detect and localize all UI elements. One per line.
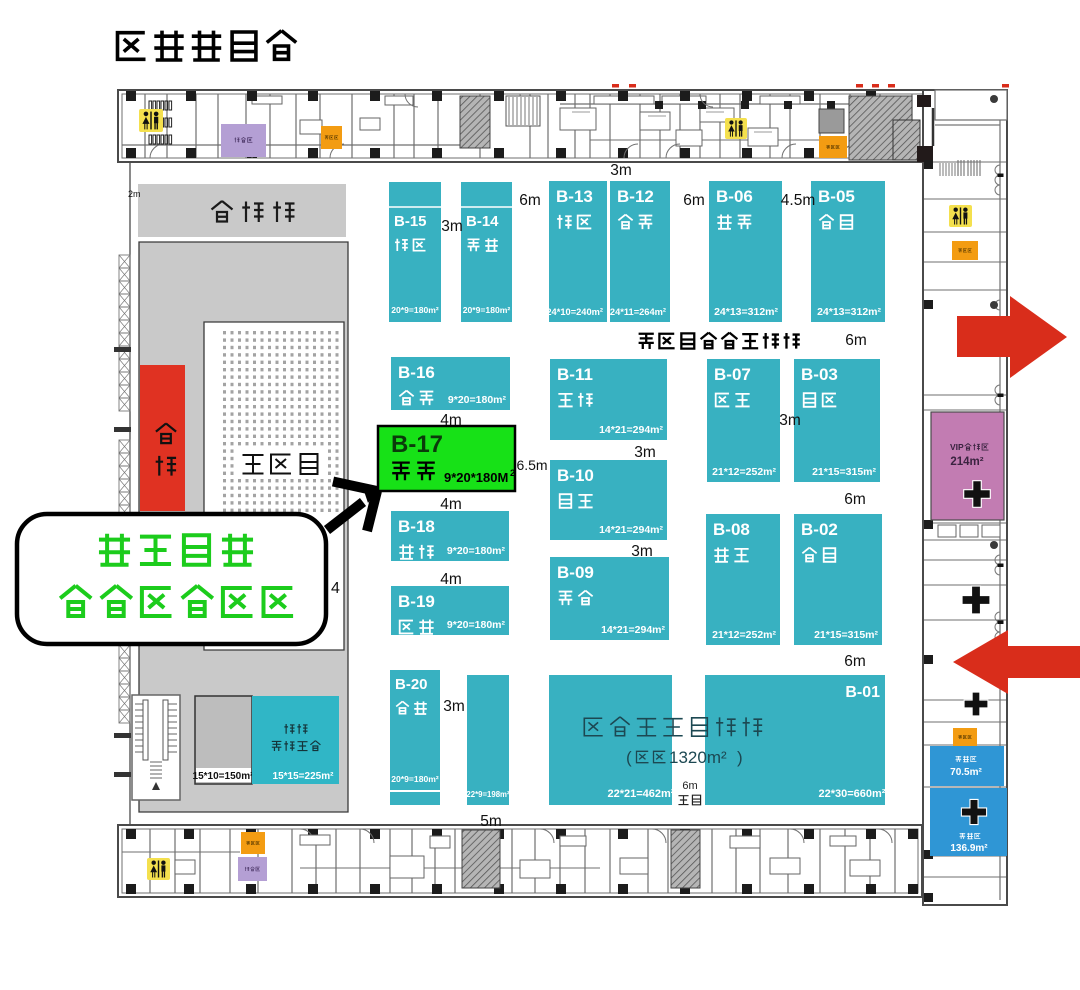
svg-text:B-01: B-01 <box>845 684 880 701</box>
svg-text:22*21=462m²: 22*21=462m² <box>608 788 675 800</box>
svg-text:B-17: B-17 <box>391 431 443 458</box>
svg-text:B-14: B-14 <box>466 213 499 230</box>
svg-text:21*15=315m²: 21*15=315m² <box>814 629 878 641</box>
svg-text:6m: 6m <box>845 332 867 349</box>
svg-text:9*20=180m²: 9*20=180m² <box>447 545 506 557</box>
svg-text:B-20: B-20 <box>395 676 428 693</box>
svg-text:9*20=180m²: 9*20=180m² <box>448 394 507 406</box>
svg-text:9*20*180M: 9*20*180M <box>444 470 508 485</box>
svg-text:3m: 3m <box>443 698 465 715</box>
svg-text:6m: 6m <box>519 192 541 209</box>
svg-text:6m: 6m <box>844 653 866 670</box>
svg-text:15*15=225m²: 15*15=225m² <box>273 771 335 782</box>
svg-text:B-03: B-03 <box>801 365 838 384</box>
svg-text:B-09: B-09 <box>557 563 594 582</box>
svg-text:5m: 5m <box>480 813 502 830</box>
svg-text:9*20=180m²: 9*20=180m² <box>447 619 506 631</box>
svg-text:B-11: B-11 <box>557 365 593 384</box>
svg-text:4m: 4m <box>440 496 462 513</box>
svg-text:24*11=264m²: 24*11=264m² <box>610 307 666 317</box>
svg-text:20*9=180m²: 20*9=180m² <box>391 305 439 315</box>
svg-text:24*13=312m²: 24*13=312m² <box>817 306 881 318</box>
svg-text:6.5m: 6.5m <box>516 457 547 473</box>
svg-text:20*9=180m²: 20*9=180m² <box>391 774 439 784</box>
svg-text:3m: 3m <box>631 543 653 560</box>
svg-text:22*30=660m²: 22*30=660m² <box>819 788 886 800</box>
svg-text:4m: 4m <box>440 571 462 588</box>
svg-text:B-10: B-10 <box>557 466 594 485</box>
svg-text:3m: 3m <box>634 444 656 461</box>
svg-text:(: ( <box>626 748 632 767</box>
svg-text:14*21=294m²: 14*21=294m² <box>601 624 665 636</box>
svg-text:3m: 3m <box>610 162 632 179</box>
svg-text:3m: 3m <box>441 218 463 235</box>
svg-text:70.5m²: 70.5m² <box>950 767 982 778</box>
svg-text:136.9m²: 136.9m² <box>950 843 988 854</box>
svg-text:B-12: B-12 <box>617 187 654 206</box>
svg-text:3m: 3m <box>779 412 801 429</box>
svg-text:15*10=150m²: 15*10=150m² <box>193 771 255 782</box>
svg-text:6m: 6m <box>844 491 866 508</box>
svg-text:B-07: B-07 <box>714 365 751 384</box>
svg-text:14*21=294m²: 14*21=294m² <box>599 424 663 436</box>
svg-text:22*9=198m²: 22*9=198m² <box>466 790 510 799</box>
svg-text:6m: 6m <box>682 780 697 792</box>
svg-text:B-05: B-05 <box>818 187 855 206</box>
svg-text:2m: 2m <box>128 189 141 199</box>
svg-text:4m: 4m <box>440 412 462 429</box>
svg-text:B-08: B-08 <box>713 520 750 539</box>
svg-text:14*21=294m²: 14*21=294m² <box>599 524 663 536</box>
svg-text:B-15: B-15 <box>394 213 427 230</box>
svg-text:6m: 6m <box>683 192 705 209</box>
svg-text:2: 2 <box>510 468 515 479</box>
svg-text:): ) <box>737 748 743 767</box>
svg-text:B-06: B-06 <box>716 187 753 206</box>
svg-text:B-19: B-19 <box>398 592 435 611</box>
svg-text:B-16: B-16 <box>398 363 435 382</box>
svg-text:24*10=240m²: 24*10=240m² <box>546 307 603 317</box>
svg-text:4: 4 <box>331 580 340 597</box>
svg-text:B-13: B-13 <box>556 187 593 206</box>
svg-text:20*9=180m²: 20*9=180m² <box>463 305 511 315</box>
svg-text:21*15=315m²: 21*15=315m² <box>812 466 876 478</box>
svg-text:21*12=252m²: 21*12=252m² <box>712 466 776 478</box>
svg-text:1320m²: 1320m² <box>669 748 727 767</box>
svg-text:B-02: B-02 <box>801 520 838 539</box>
svg-text:214m²: 214m² <box>950 456 983 468</box>
svg-text:24*13=312m²: 24*13=312m² <box>714 306 778 318</box>
svg-text:B-18: B-18 <box>398 517 435 536</box>
svg-text:VIP: VIP <box>950 442 964 452</box>
svg-text:4.5m: 4.5m <box>781 192 815 209</box>
svg-text:21*12=252m²: 21*12=252m² <box>712 629 776 641</box>
